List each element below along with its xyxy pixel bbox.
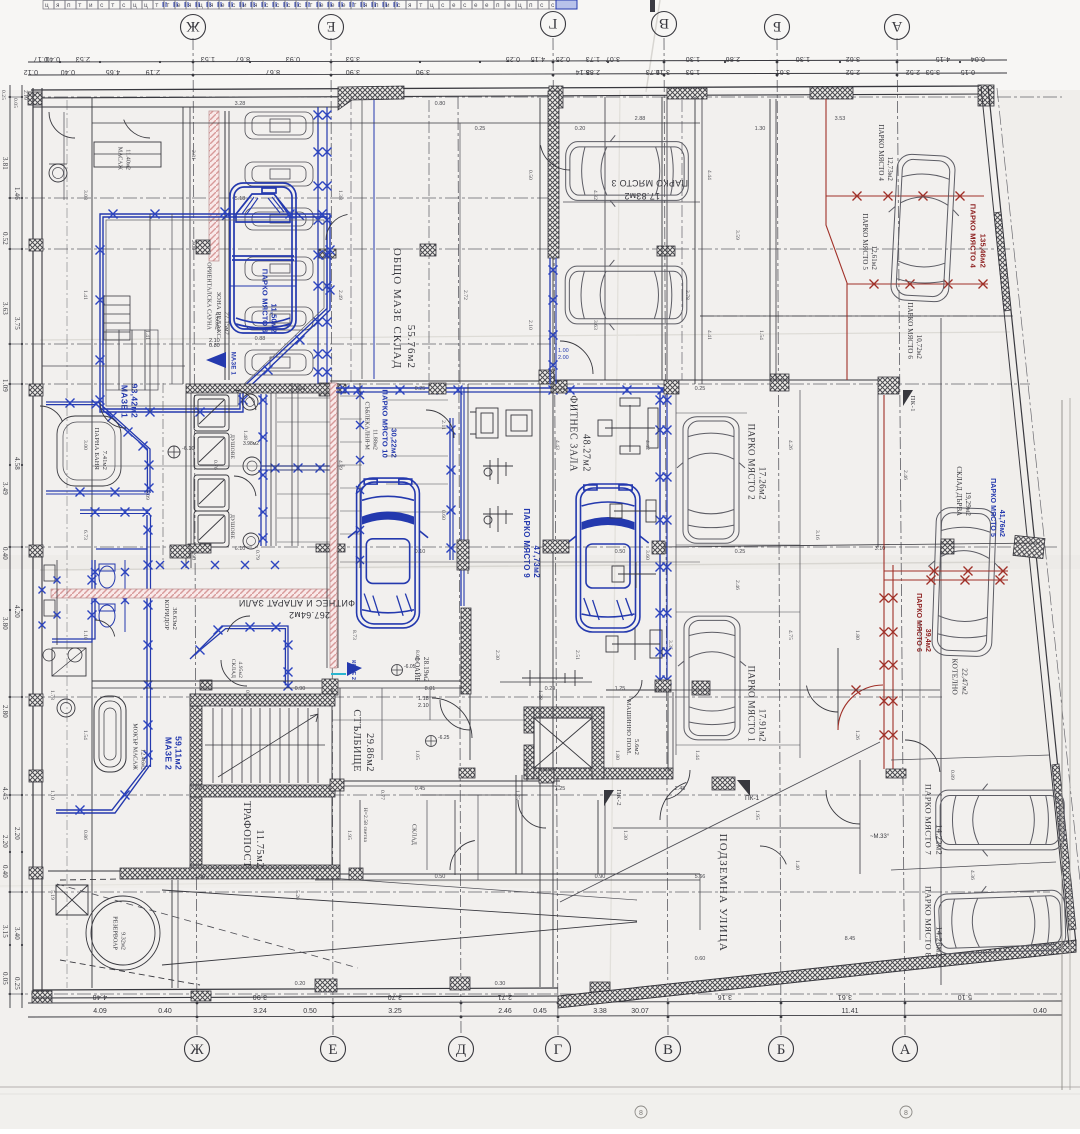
svg-text:Е: Е <box>326 18 335 34</box>
svg-text:3.80: 3.80 <box>1 617 9 630</box>
svg-text:2.46: 2.46 <box>902 470 908 480</box>
svg-text:27.15м2: 27.15м2 <box>223 312 230 335</box>
svg-text:и: и <box>243 2 247 9</box>
svg-text:Д: Д <box>456 1042 466 1058</box>
svg-text:т: т <box>78 2 82 9</box>
svg-text:1.25: 1.25 <box>615 686 626 692</box>
svg-text:п: п <box>67 2 71 9</box>
svg-text:п: п <box>375 2 379 9</box>
svg-text:0.60: 0.60 <box>695 956 706 962</box>
svg-text:МАЗЕ 1: МАЗЕ 1 <box>230 352 236 376</box>
svg-text:-6.10: -6.10 <box>182 446 195 452</box>
svg-text:0.40: 0.40 <box>1 865 9 878</box>
svg-text:3.53: 3.53 <box>926 68 940 75</box>
svg-text:0.15: 0.15 <box>961 68 975 75</box>
svg-text:А: А <box>891 18 902 34</box>
svg-text:3.10: 3.10 <box>875 546 886 552</box>
svg-text:0.17: 0.17 <box>34 55 48 62</box>
svg-text:1.30: 1.30 <box>622 830 628 840</box>
svg-text:ц: ц <box>518 2 522 9</box>
svg-text:0.10: 0.10 <box>415 549 426 555</box>
svg-text:с: с <box>232 2 236 9</box>
svg-text:е: е <box>221 2 225 9</box>
svg-text:3.35: 3.35 <box>667 640 673 650</box>
svg-text:А: А <box>900 1042 911 1058</box>
svg-text:0.05: 0.05 <box>1 972 9 985</box>
svg-text:4.44: 4.44 <box>706 170 712 180</box>
svg-text:0.61: 0.61 <box>195 786 206 792</box>
svg-text:1.41: 1.41 <box>82 290 88 300</box>
svg-text:т: т <box>166 2 170 9</box>
svg-text:1.54: 1.54 <box>758 330 764 340</box>
svg-text:1.66: 1.66 <box>295 386 306 392</box>
svg-text:3.16: 3.16 <box>814 530 820 540</box>
svg-text:и: и <box>89 2 93 9</box>
svg-text:4.75: 4.75 <box>787 630 793 640</box>
svg-text:2.52: 2.52 <box>846 68 860 75</box>
svg-text:с: с <box>540 2 544 9</box>
svg-text:0.40: 0.40 <box>1033 1008 1047 1015</box>
svg-text:с: с <box>397 2 401 9</box>
svg-text:2.86: 2.86 <box>726 55 740 62</box>
svg-text:е: е <box>342 2 346 9</box>
svg-text:ФИТНЕС И АПАРАТ ЗАЛИ: ФИТНЕС И АПАРАТ ЗАЛИ <box>239 598 355 608</box>
svg-text:5.19: 5.19 <box>49 890 55 900</box>
svg-text:3.08: 3.08 <box>82 190 88 200</box>
svg-text:и: и <box>386 2 390 9</box>
svg-text:1.54: 1.54 <box>82 730 88 740</box>
svg-text:2.48: 2.48 <box>675 786 686 792</box>
svg-text:1.90: 1.90 <box>190 550 196 560</box>
svg-text:е: е <box>177 2 181 9</box>
svg-text:я: я <box>188 2 192 9</box>
svg-text:с: с <box>441 2 445 9</box>
svg-text:1.40: 1.40 <box>794 860 800 870</box>
svg-text:т: т <box>111 2 115 9</box>
svg-text:ц: ц <box>430 2 434 9</box>
svg-text:2.46: 2.46 <box>498 1008 512 1015</box>
svg-text:1.38: 1.38 <box>537 690 543 700</box>
svg-text:2.11: 2.11 <box>440 420 446 430</box>
svg-text:3.16: 3.16 <box>718 993 732 1000</box>
svg-text:4.15: 4.15 <box>531 55 545 62</box>
svg-text:3.75: 3.75 <box>13 317 21 330</box>
svg-text:5.18: 5.18 <box>235 196 246 202</box>
svg-text:1.95: 1.95 <box>346 830 352 840</box>
svg-text:Г: Г <box>554 1042 563 1058</box>
svg-text:1.00: 1.00 <box>195 874 206 880</box>
svg-text:0.25: 0.25 <box>475 126 486 132</box>
svg-text:Ж: Ж <box>186 18 200 34</box>
svg-text:4.15: 4.15 <box>936 55 950 62</box>
svg-text:2.30: 2.30 <box>494 650 500 660</box>
svg-text:8.73: 8.73 <box>351 630 357 640</box>
svg-text:МАЗЕ 259,11м2: МАЗЕ 259,11м2 <box>164 736 184 770</box>
svg-text:~М.33°: ~М.33° <box>870 834 890 840</box>
svg-text:2.53: 2.53 <box>76 55 90 62</box>
svg-text:ПОДЗЕМНА УЛИЦА: ПОДЗЕМНА УЛИЦА <box>717 834 729 952</box>
svg-text:я: я <box>56 2 60 9</box>
svg-text:1.09: 1.09 <box>1 379 9 392</box>
svg-text:6.10: 6.10 <box>235 546 246 552</box>
svg-text:1.53: 1.53 <box>201 55 215 62</box>
svg-text:0.45: 0.45 <box>415 786 426 792</box>
svg-text:4.41: 4.41 <box>706 330 712 340</box>
svg-text:8.01: 8.01 <box>414 650 420 660</box>
svg-text:1.53: 1.53 <box>686 68 700 75</box>
svg-text:4.09: 4.09 <box>93 1008 107 1015</box>
svg-text:1.30: 1.30 <box>796 55 810 62</box>
svg-text:0.25: 0.25 <box>555 386 566 392</box>
svg-text:я: я <box>364 2 368 9</box>
svg-text:2.19: 2.19 <box>146 68 160 75</box>
svg-text:0.76: 0.76 <box>212 460 218 470</box>
svg-text:1.00: 1.00 <box>558 348 569 354</box>
svg-text:1.73: 1.73 <box>646 68 660 75</box>
svg-text:ПК-2: ПК-2 <box>615 790 622 806</box>
svg-text:1.44: 1.44 <box>694 750 700 760</box>
svg-text:8.01: 8.01 <box>425 686 436 692</box>
svg-text:0.25: 0.25 <box>13 977 21 990</box>
svg-text:е: е <box>507 2 511 9</box>
svg-text:1.38: 1.38 <box>337 190 343 200</box>
svg-text:0.20: 0.20 <box>575 126 586 132</box>
svg-text:с: с <box>463 2 467 9</box>
svg-text:0.77: 0.77 <box>379 790 385 800</box>
svg-text:4.36: 4.36 <box>969 870 975 880</box>
svg-text:3.61: 3.61 <box>776 68 790 75</box>
svg-text:Е: Е <box>328 1042 337 1058</box>
svg-text:0.29: 0.29 <box>545 686 556 692</box>
svg-text:0.25: 0.25 <box>506 55 520 62</box>
svg-text:т: т <box>309 2 313 9</box>
svg-text:с: с <box>287 2 291 9</box>
svg-text:е: е <box>452 2 456 9</box>
svg-text:2.52: 2.52 <box>906 68 920 75</box>
svg-text:8: 8 <box>904 1110 908 1117</box>
svg-text:2.88: 2.88 <box>635 116 646 122</box>
svg-text:ц: ц <box>199 2 203 9</box>
svg-text:1.41: 1.41 <box>144 330 150 340</box>
svg-text:6.73: 6.73 <box>82 530 88 540</box>
svg-text:-6.25: -6.25 <box>438 735 450 741</box>
svg-text:В: В <box>663 1042 673 1058</box>
svg-text:0.25: 0.25 <box>0 90 6 100</box>
svg-text:ПК-1: ПК-1 <box>745 795 760 802</box>
svg-text:с: с <box>265 2 269 9</box>
svg-text:1.73: 1.73 <box>586 55 600 62</box>
svg-text:с: с <box>122 2 126 9</box>
svg-text:МАЗЕ 193,42м2: МАЗЕ 193,42м2 <box>120 384 140 418</box>
svg-text:5.20: 5.20 <box>294 890 300 900</box>
svg-text:5.66: 5.66 <box>695 874 706 880</box>
svg-text:4.26: 4.26 <box>787 440 793 450</box>
svg-text:0.45: 0.45 <box>533 1008 547 1015</box>
svg-text:2.00: 2.00 <box>190 240 196 250</box>
svg-text:3.90: 3.90 <box>346 68 360 75</box>
svg-text:3.14: 3.14 <box>576 68 590 75</box>
svg-text:4.20: 4.20 <box>13 605 21 618</box>
svg-text:H=2.58 светла: H=2.58 светла <box>362 808 368 843</box>
svg-text:1.48: 1.48 <box>242 430 248 440</box>
svg-text:8.45: 8.45 <box>845 936 856 942</box>
svg-text:0.30: 0.30 <box>495 981 506 987</box>
svg-text:2.46: 2.46 <box>734 580 740 590</box>
svg-text:Г: Г <box>548 15 557 31</box>
svg-text:3.90: 3.90 <box>416 68 430 75</box>
svg-text:1.78: 1.78 <box>49 690 55 700</box>
svg-text:ФОАЙЕ28.19м2: ФОАЙЕ28.19м2 <box>413 656 430 682</box>
svg-text:ц: ц <box>45 2 49 9</box>
svg-text:0.86: 0.86 <box>82 830 88 840</box>
svg-text:0.12: 0.12 <box>24 68 38 75</box>
svg-text:В: В <box>659 15 669 31</box>
svg-text:3.63: 3.63 <box>1 302 9 315</box>
svg-text:4.42: 4.42 <box>644 440 650 450</box>
svg-text:0.50: 0.50 <box>303 1008 317 1015</box>
svg-text:1.10: 1.10 <box>82 630 88 640</box>
svg-text:2.10: 2.10 <box>209 338 220 344</box>
svg-text:0.88: 0.88 <box>255 336 266 342</box>
svg-text:5.10: 5.10 <box>958 993 972 1000</box>
svg-text:3.38: 3.38 <box>593 1008 607 1015</box>
svg-text:0.79: 0.79 <box>254 550 260 560</box>
svg-text:4.48: 4.48 <box>93 993 107 1000</box>
svg-text:2.20: 2.20 <box>1 835 9 848</box>
svg-text:0.40: 0.40 <box>1 547 9 560</box>
svg-text:Б: Б <box>773 18 782 34</box>
svg-text:1.46: 1.46 <box>13 187 21 200</box>
svg-text:0.50: 0.50 <box>615 549 626 555</box>
svg-text:3.07: 3.07 <box>606 55 620 62</box>
svg-text:4.65: 4.65 <box>106 68 120 75</box>
svg-text:с: с <box>276 2 280 9</box>
svg-text:267.64м2: 267.64м2 <box>289 610 330 620</box>
svg-text:с: с <box>100 2 104 9</box>
svg-text:0.40: 0.40 <box>61 68 75 75</box>
svg-text:3.59: 3.59 <box>734 230 740 240</box>
svg-text:я: я <box>210 2 214 9</box>
svg-text:0.60: 0.60 <box>440 510 446 520</box>
svg-text:0.25: 0.25 <box>415 386 426 392</box>
svg-text:ПАРКО МЯСТО 3: ПАРКО МЯСТО 3 <box>611 178 688 188</box>
svg-text:4.32: 4.32 <box>592 190 598 200</box>
svg-text:0.90: 0.90 <box>295 686 306 692</box>
svg-text:0.05: 0.05 <box>12 98 18 108</box>
svg-text:3.81: 3.81 <box>1 157 9 170</box>
svg-text:2.19: 2.19 <box>22 90 28 100</box>
svg-text:КОЗЕ 2: КОЗЕ 2 <box>350 660 356 680</box>
svg-text:ц: ц <box>133 2 137 9</box>
svg-text:ДУШОВЕ: ДУШОВЕ <box>229 514 235 539</box>
svg-text:4.43: 4.43 <box>554 440 560 450</box>
svg-text:2.10: 2.10 <box>418 703 429 709</box>
svg-text:1.80: 1.80 <box>854 630 860 640</box>
svg-text:3.60: 3.60 <box>644 550 650 560</box>
svg-text:1.30: 1.30 <box>755 126 766 132</box>
svg-text:1.54: 1.54 <box>144 870 150 880</box>
svg-text:0.52: 0.52 <box>1 232 9 245</box>
svg-text:Ж: Ж <box>190 1042 204 1058</box>
svg-text:с: с <box>551 2 555 9</box>
svg-text:3.98м2: 3.98м2 <box>243 441 259 447</box>
svg-text:0.04: 0.04 <box>971 55 985 62</box>
svg-text:1.05: 1.05 <box>414 750 420 760</box>
svg-text:0.90: 0.90 <box>595 874 606 880</box>
svg-text:ц: ц <box>144 2 148 9</box>
svg-text:1.30: 1.30 <box>686 55 700 62</box>
svg-text:0.25: 0.25 <box>556 55 570 62</box>
svg-text:0.50: 0.50 <box>435 874 446 880</box>
svg-text:е: е <box>474 2 478 9</box>
svg-text:3.78: 3.78 <box>684 290 690 300</box>
svg-text:0.40: 0.40 <box>158 1008 172 1015</box>
svg-text:2.00: 2.00 <box>558 355 569 361</box>
svg-text:ДУШОВЕ: ДУШОВЕ <box>229 434 235 459</box>
svg-text:4.39: 4.39 <box>337 460 343 470</box>
svg-text:СКЛАД4.95м2: СКЛАД4.95м2 <box>230 659 243 678</box>
svg-text:0.80: 0.80 <box>435 101 446 107</box>
svg-text:8.67: 8.67 <box>236 55 250 62</box>
svg-text:п: п <box>496 2 500 9</box>
svg-text:2.20: 2.20 <box>13 827 21 840</box>
svg-text:3.25: 3.25 <box>388 1008 402 1015</box>
svg-text:т: т <box>419 2 423 9</box>
svg-text:0.20: 0.20 <box>295 981 306 987</box>
svg-text:3.28: 3.28 <box>235 101 246 107</box>
svg-text:е: е <box>320 2 324 9</box>
svg-text:е: е <box>331 2 335 9</box>
svg-text:СКЛАД: СКЛАД <box>411 824 417 845</box>
svg-text:4.45: 4.45 <box>1 787 9 800</box>
svg-text:2.49: 2.49 <box>337 290 343 300</box>
svg-text:3.49: 3.49 <box>1 482 9 495</box>
svg-text:1.26: 1.26 <box>854 730 860 740</box>
svg-text:17.83м2: 17.83м2 <box>624 191 660 201</box>
svg-text:3.61: 3.61 <box>838 993 852 1000</box>
svg-text:1.25: 1.25 <box>555 786 566 792</box>
svg-text:30.07: 30.07 <box>631 1008 649 1015</box>
svg-text:1.75: 1.75 <box>514 790 520 800</box>
svg-text:т: т <box>155 2 159 9</box>
svg-text:2.81: 2.81 <box>190 150 196 160</box>
svg-text:3.40: 3.40 <box>13 927 21 940</box>
svg-text:3.15: 3.15 <box>1 925 9 938</box>
svg-text:Б: Б <box>777 1042 786 1058</box>
svg-text:3.62: 3.62 <box>846 55 860 62</box>
svg-text:я: я <box>254 2 258 9</box>
svg-text:11.41: 11.41 <box>842 1008 859 1015</box>
svg-text:3.90: 3.90 <box>253 993 267 1000</box>
svg-text:2.51: 2.51 <box>574 650 580 660</box>
svg-text:0.50: 0.50 <box>527 170 533 180</box>
svg-text:0.89: 0.89 <box>949 770 955 780</box>
svg-text:0.93: 0.93 <box>286 55 300 62</box>
svg-text:3.00: 3.00 <box>82 440 88 450</box>
svg-text:1.10: 1.10 <box>49 790 55 800</box>
svg-text:3.63: 3.63 <box>592 320 598 330</box>
svg-text:8: 8 <box>639 1110 643 1117</box>
svg-text:1.80: 1.80 <box>614 750 620 760</box>
svg-text:3.53: 3.53 <box>346 55 360 62</box>
svg-text:0.25: 0.25 <box>244 690 250 700</box>
svg-text:3.53: 3.53 <box>835 116 846 122</box>
svg-text:т: т <box>353 2 357 9</box>
svg-text:1.18: 1.18 <box>418 696 429 702</box>
svg-text:п: п <box>529 2 533 9</box>
svg-text:8.67: 8.67 <box>266 68 280 75</box>
svg-text:2.72: 2.72 <box>462 290 468 300</box>
svg-text:2.10: 2.10 <box>527 320 533 330</box>
svg-text:1.95: 1.95 <box>754 810 760 820</box>
svg-text:ПК-1: ПК-1 <box>909 396 916 412</box>
svg-text:3.09: 3.09 <box>144 490 150 500</box>
svg-text:е: е <box>485 2 489 9</box>
svg-text:с: с <box>298 2 302 9</box>
svg-text:0.25: 0.25 <box>735 549 746 555</box>
svg-text:2.80: 2.80 <box>1 705 9 718</box>
svg-text:0.25: 0.25 <box>695 386 706 392</box>
svg-text:3.24: 3.24 <box>253 1008 267 1015</box>
svg-text:я: я <box>408 2 412 9</box>
svg-text:4.58: 4.58 <box>13 457 21 470</box>
